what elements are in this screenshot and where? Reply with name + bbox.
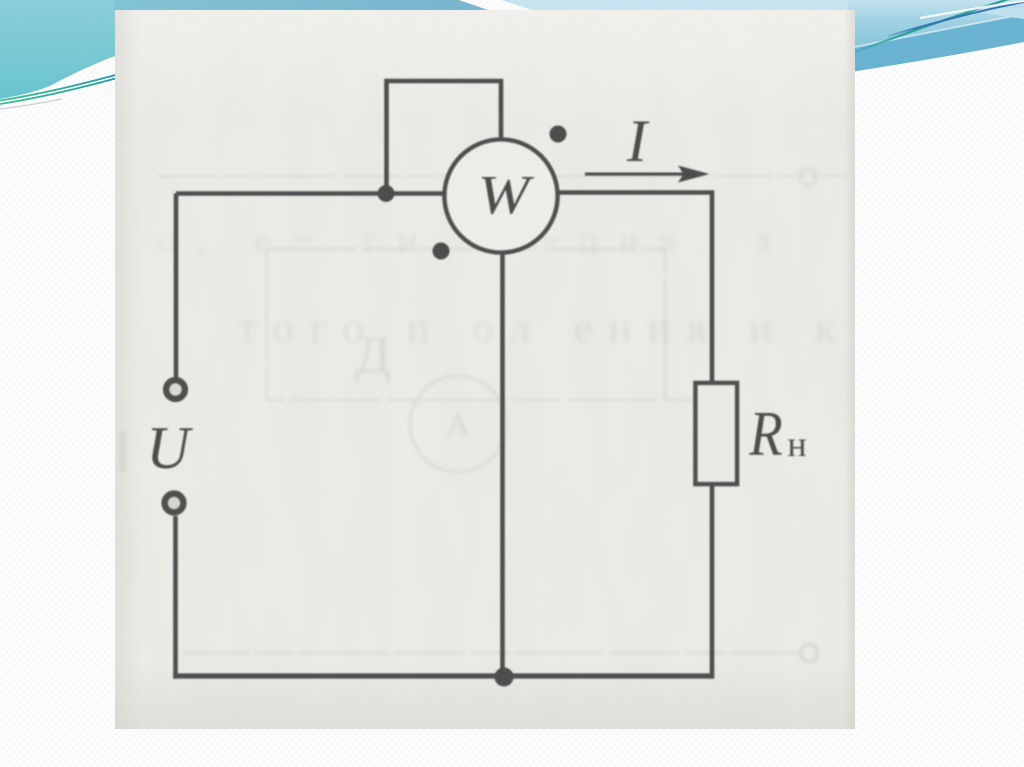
svg-text:I: I bbox=[626, 108, 650, 174]
svg-text:U: U bbox=[146, 415, 193, 481]
svg-text:A: A bbox=[446, 407, 471, 444]
svg-text:R: R bbox=[748, 398, 782, 469]
svg-text:н: н bbox=[787, 424, 806, 464]
svg-text:того п ол ения и к: того п ол ения и к bbox=[238, 305, 852, 352]
svg-text:W: W bbox=[478, 164, 535, 225]
